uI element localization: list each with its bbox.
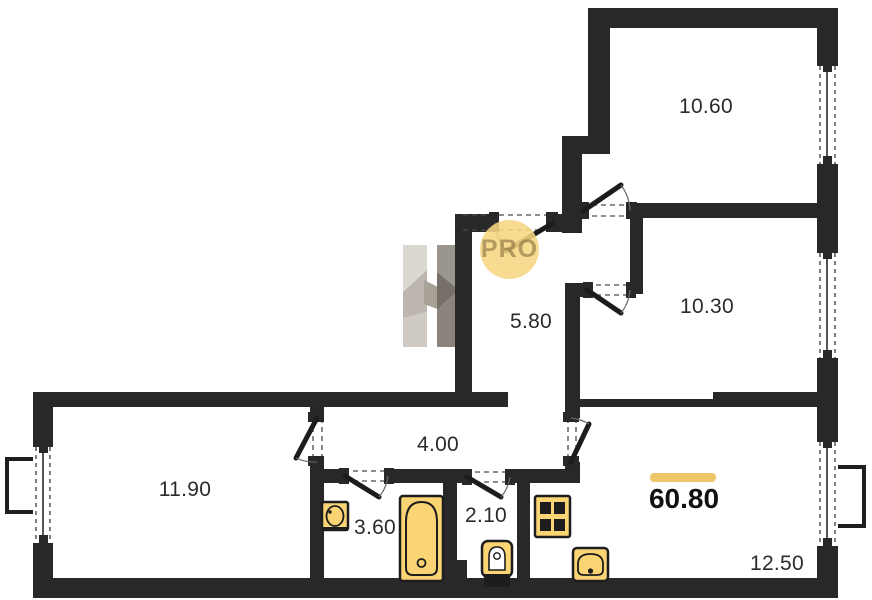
wall	[565, 295, 580, 418]
stove-icon	[535, 496, 570, 537]
room-label-corridor: 4.00	[417, 433, 459, 457]
wall	[33, 392, 508, 407]
balcony-outline-right	[838, 467, 864, 526]
door-leaf-bedroom-right	[587, 290, 621, 313]
toilet-icon	[482, 541, 512, 587]
wall	[817, 164, 838, 253]
room-label-bedroom-top: 10.60	[679, 95, 733, 119]
room-label-hall: 5.80	[510, 310, 552, 334]
floor-plan-drawing	[0, 0, 872, 600]
room-label-living-kitchen: 12.50	[750, 552, 804, 576]
wall	[713, 392, 817, 407]
wall	[817, 358, 838, 442]
room-label-bedroom-right: 10.30	[680, 295, 734, 319]
window-bedroom-top	[820, 64, 835, 164]
door-leaf-room-left	[296, 418, 317, 458]
wall	[455, 560, 467, 578]
floor-plan-page: 10.60 10.30 5.80 4.00 11.90 3.60 2.10 12…	[0, 0, 872, 600]
door-jamb-nubs	[308, 202, 637, 485]
door-leaf-bedroom-top	[583, 185, 621, 211]
pro-badge: PRO	[480, 220, 539, 279]
wall	[580, 399, 713, 407]
room-label-wc: 2.10	[465, 504, 507, 528]
wall	[455, 214, 472, 406]
window-room-left	[36, 445, 50, 543]
door-leaf-wc	[467, 477, 501, 497]
pro-badge-text: PRO	[481, 235, 538, 264]
wall	[517, 469, 530, 578]
total-area-label: 60.80	[649, 483, 719, 515]
wall	[817, 8, 838, 66]
balcony-outline-left	[7, 459, 33, 512]
window-living	[820, 440, 835, 546]
wall	[588, 8, 610, 144]
room-label-bathroom: 3.60	[354, 516, 396, 540]
wall	[33, 392, 53, 447]
window-bedroom-right	[820, 251, 835, 358]
wall	[630, 203, 817, 218]
door-leaf-bathroom	[345, 476, 379, 497]
bathtub-icon	[400, 496, 443, 581]
room-label-room-left: 11.90	[159, 478, 212, 502]
wall	[588, 8, 838, 28]
h-logo-watermark-icon	[403, 245, 459, 347]
bath-sink-icon	[322, 502, 348, 531]
kitchen-sink-icon	[573, 548, 608, 581]
door-leaf-living	[571, 424, 589, 462]
total-area-bar	[650, 473, 716, 482]
wall	[443, 472, 457, 578]
